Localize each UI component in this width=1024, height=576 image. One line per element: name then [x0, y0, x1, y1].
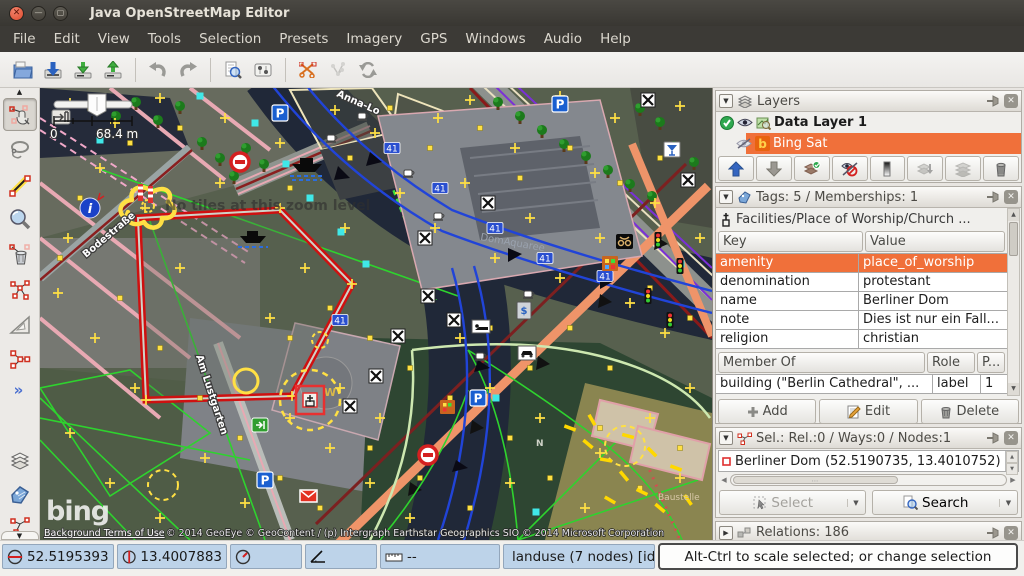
more-tools-button[interactable]: » [3, 378, 37, 402]
menu-audio[interactable]: Audio [535, 27, 591, 51]
menu-bar: File Edit View Tools Selection Presets I… [0, 26, 1024, 52]
menu-imagery[interactable]: Imagery [337, 27, 411, 51]
svg-text:41: 41 [434, 185, 445, 195]
upload-button[interactable] [98, 56, 128, 84]
open-button[interactable] [8, 56, 38, 84]
layer-name: Bing Sat [773, 136, 827, 151]
svg-text:41: 41 [539, 255, 550, 265]
no-tiles-message: No tiles at this zoom level [165, 198, 370, 214]
tags-close-icon[interactable]: ✕ [1004, 190, 1018, 204]
layer-show-hide-button[interactable] [832, 156, 868, 181]
redo-button[interactable] [173, 56, 203, 84]
church-icon [720, 212, 732, 227]
window-maximize-button[interactable]: ▢ [53, 6, 68, 21]
select-button[interactable]: Select ▼ [719, 490, 866, 515]
pretzel-icon [616, 234, 633, 249]
select-cursor-icon [753, 496, 767, 510]
visibility-eye-off-icon[interactable] [736, 138, 752, 149]
download-button[interactable] [68, 56, 98, 84]
update-data-button[interactable] [353, 56, 383, 84]
layer-merge-down-button[interactable] [907, 156, 943, 181]
svg-text:P: P [474, 392, 483, 406]
svg-text:$: $ [521, 306, 528, 317]
layers-icon [737, 94, 753, 108]
terms-of-use-link[interactable]: Background Terms of Use [44, 528, 165, 539]
main-toolbar [0, 52, 1024, 88]
menu-selection[interactable]: Selection [190, 27, 270, 51]
layer-delete-button[interactable] [983, 156, 1019, 181]
relations-close-icon[interactable]: ✕ [1004, 526, 1018, 540]
layer-name: Data Layer 1 [774, 115, 867, 130]
layer-duplicate-button[interactable] [945, 156, 981, 181]
menu-view[interactable]: View [89, 27, 139, 51]
tag-row[interactable]: noteDies ist nur ein Fall... [716, 310, 1007, 329]
tags-title: Tags: 5 / Memberships: 1 [756, 190, 982, 205]
search-icon [903, 495, 918, 510]
zoom-to-download-button[interactable] [218, 56, 248, 84]
tags-column-key[interactable]: Key [718, 231, 863, 252]
selection-panel: ▼ Sel.: Rel.:0 / Ways:0 / Nodes:1 ✕ Berl… [715, 427, 1022, 518]
search-button[interactable]: Search ▼ [872, 490, 1019, 515]
layer-move-up-button[interactable] [718, 156, 754, 181]
bar-icon [664, 142, 680, 157]
tag-row[interactable]: denominationprotestant [716, 272, 1007, 291]
combine-way-button[interactable] [323, 56, 353, 84]
longitude-icon [122, 549, 136, 565]
svg-text:68.4 m: 68.4 m [96, 127, 138, 141]
menu-windows[interactable]: Windows [456, 27, 534, 51]
post-box-icon [300, 490, 317, 502]
layers-dialog-button[interactable] [3, 443, 37, 476]
merge-nodes-tool-button[interactable] [3, 343, 37, 376]
tags-scrollbar[interactable]: ▲▼ [1007, 208, 1020, 396]
active-layer-check-icon [720, 116, 734, 130]
angle-field [305, 544, 377, 569]
atm-icon: $ [517, 302, 531, 319]
undo-button[interactable] [143, 56, 173, 84]
membership-row[interactable]: building ("Berlin Cathedral", ... label … [716, 374, 1007, 394]
member-column-role[interactable]: Role [927, 352, 975, 373]
selection-icon [737, 432, 752, 445]
layer-move-down-button[interactable] [756, 156, 792, 181]
select-dropdown-arrow[interactable]: ▼ [847, 499, 865, 507]
menu-tools[interactable]: Tools [139, 27, 190, 51]
layers-title: Layers [757, 94, 982, 109]
map-canvas[interactable]: PPPP414141414141 i [40, 88, 712, 540]
svg-text:P: P [556, 98, 565, 112]
latitude-icon [7, 549, 23, 565]
tags-collapse-icon[interactable]: ▼ [719, 190, 733, 204]
sticky-pin-icon[interactable] [986, 190, 1000, 204]
unglue-tool-button[interactable] [3, 273, 37, 306]
layers-panel: ▼ Layers ✕ Data Layer 1 b Bing Sat [715, 90, 1022, 183]
visibility-eye-icon[interactable] [737, 117, 753, 128]
svg-text:P: P [276, 107, 285, 121]
zoom-tool-button[interactable] [3, 203, 37, 236]
editbar-collapse-bottom[interactable]: ▼ [1, 531, 39, 540]
tags-column-value[interactable]: Value [865, 231, 1005, 252]
angle-icon [310, 549, 326, 564]
hotel-icon [472, 320, 490, 333]
tag-row[interactable]: nameBerliner Dom [716, 291, 1007, 310]
title-bar: ✕ — ▢ Java OpenStreetMap Editor [0, 0, 1024, 26]
data-layer-icon [756, 116, 771, 130]
layer-row-data-layer[interactable]: Data Layer 1 [716, 112, 1021, 133]
relations-title: Relations: 186 [756, 525, 982, 540]
layers-collapse-icon[interactable]: ▼ [719, 94, 733, 108]
hovered-object-field: landuse (7 nodes) [id: ... [503, 544, 655, 569]
add-tag-button[interactable]: Add [718, 399, 816, 424]
preset-row[interactable]: Facilities/Place of Worship/Church ... [716, 208, 1021, 230]
tag-icon [737, 190, 752, 204]
edit-toolbar: ▲ » ▼ [0, 88, 40, 540]
latitude-field: 52.5195393 [2, 544, 114, 569]
selection-hscrollbar[interactable]: ◀ ⋯ ▶ [719, 473, 1018, 487]
layer-opacity-button[interactable] [870, 156, 906, 181]
member-column-position[interactable]: P... [977, 352, 1005, 373]
preferences-button[interactable] [248, 56, 278, 84]
sticky-pin-icon[interactable] [986, 94, 1000, 108]
layers-close-icon[interactable]: ✕ [1004, 94, 1018, 108]
save-button[interactable] [38, 56, 68, 84]
preset-label: Facilities/Place of Worship/Church ... [736, 212, 971, 227]
copyright-text: © 2014 GeoEye © GeoContent / (p) Intergr… [166, 528, 664, 539]
window-minimize-button[interactable]: — [31, 6, 46, 21]
edit-tag-button[interactable]: Edit [819, 399, 917, 424]
ruler-icon [385, 552, 403, 562]
selection-collapse-icon[interactable]: ▼ [719, 431, 733, 445]
menu-help[interactable]: Help [591, 27, 640, 51]
longitude-field: 13.4007883 [117, 544, 227, 569]
svg-text:i: i [88, 202, 93, 217]
svg-text:41: 41 [334, 317, 345, 327]
n-label: N [536, 439, 544, 449]
selection-title: Sel.: Rel.:0 / Ways:0 / Nodes:1 [756, 431, 982, 446]
member-column-memberof[interactable]: Member Of [718, 352, 925, 373]
svg-text:41: 41 [599, 273, 610, 283]
svg-text:0: 0 [50, 127, 58, 141]
layer-activate-button[interactable] [794, 156, 830, 181]
tag-row[interactable]: religionchristian [716, 329, 1007, 349]
sticky-pin-icon[interactable] [986, 431, 1000, 445]
angle-snap-tool-button[interactable] [3, 308, 37, 341]
selection-item-label: Berliner Dom (52.5190735, 13.4010752) [735, 454, 1001, 469]
window-title: Java OpenStreetMap Editor [90, 6, 289, 21]
tag-row[interactable]: amenityplace_of_worship [716, 253, 1007, 272]
bing-logo: bing [46, 496, 109, 527]
relations-collapse-icon[interactable]: ▶ [719, 526, 733, 540]
distance-field: -- [380, 544, 500, 569]
lasso-tool-button[interactable] [3, 133, 37, 166]
sticky-pin-icon[interactable] [986, 526, 1000, 540]
heading-field [230, 544, 302, 569]
tags-panel: ▼ Tags: 5 / Memberships: 1 ✕ ▲▼ Faciliti… [715, 186, 1022, 424]
svg-text:P: P [261, 474, 270, 488]
selection-list-item[interactable]: Berliner Dom (52.5190735, 13.4010752) ▲▼ [718, 450, 1019, 472]
svg-text:W: W [324, 386, 336, 399]
select-tool-button[interactable] [3, 98, 37, 131]
side-panel: ▼ Layers ✕ Data Layer 1 b Bing Sat [712, 88, 1024, 540]
tags-dialog-button[interactable] [3, 478, 37, 511]
delete-tool-button[interactable] [3, 238, 37, 271]
selection-close-icon[interactable]: ✕ [1004, 431, 1018, 445]
menu-presets[interactable]: Presets [270, 27, 337, 51]
menu-edit[interactable]: Edit [45, 27, 89, 51]
split-way-button[interactable] [293, 56, 323, 84]
status-help-message: Alt-Ctrl to scale selected; or change se… [658, 543, 1018, 570]
baustelle-label: Baustelle [658, 493, 700, 503]
layer-row-bing-sat[interactable]: b Bing Sat [716, 133, 1021, 154]
bing-layer-icon: b [755, 136, 770, 151]
search-dropdown-arrow[interactable]: ▼ [999, 499, 1017, 507]
svg-text:41: 41 [386, 145, 397, 155]
node-icon [722, 457, 731, 466]
selection-spinner[interactable]: ▲▼ [1005, 451, 1018, 471]
editbar-collapse-top[interactable]: ▲ [3, 88, 37, 97]
menu-file[interactable]: File [4, 27, 45, 51]
delete-tag-button[interactable]: Delete [921, 399, 1019, 424]
draw-nodes-tool-button[interactable] [3, 168, 37, 201]
window-close-button[interactable]: ✕ [9, 6, 24, 21]
heading-icon [235, 549, 251, 565]
status-bar: 52.5195393 13.4007883 -- landuse (7 node… [0, 540, 1024, 576]
taxi-icon [518, 346, 536, 360]
relations-icon [737, 526, 752, 539]
door-icon [252, 418, 268, 432]
menu-gps[interactable]: GPS [411, 27, 456, 51]
